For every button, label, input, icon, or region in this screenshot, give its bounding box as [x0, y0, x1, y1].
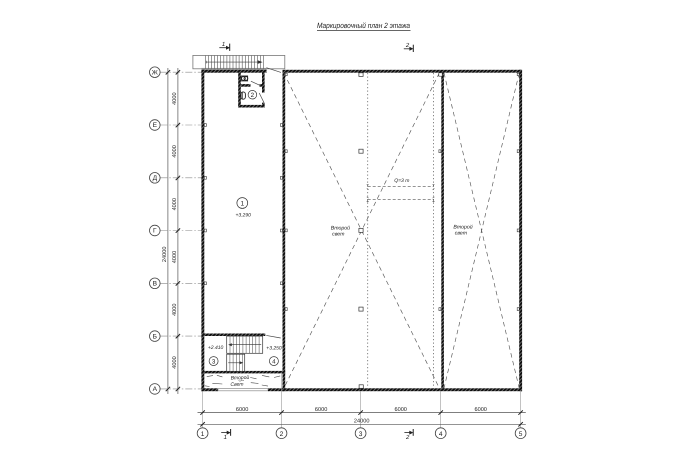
svg-text:24000: 24000 [354, 419, 370, 425]
svg-text:свет: свет [455, 231, 468, 237]
svg-text:2: 2 [405, 42, 410, 49]
svg-text:6000: 6000 [315, 407, 327, 413]
svg-text:+3.290: +3.290 [235, 213, 251, 219]
svg-text:2: 2 [405, 434, 410, 441]
svg-text:1: 1 [240, 200, 244, 207]
svg-text:свет: свет [332, 232, 345, 238]
svg-text:Второй: Второй [231, 375, 250, 382]
svg-text:5: 5 [519, 431, 523, 438]
svg-text:4000: 4000 [172, 303, 178, 315]
svg-text:2: 2 [280, 431, 284, 438]
svg-text:Д: Д [153, 175, 158, 182]
svg-text:6000: 6000 [394, 407, 406, 413]
svg-text:6000: 6000 [236, 407, 248, 413]
svg-text:24000: 24000 [162, 247, 168, 263]
svg-text:+2.410: +2.410 [208, 345, 224, 351]
svg-text:4: 4 [272, 358, 276, 365]
svg-text:Q=3 т: Q=3 т [394, 178, 409, 184]
svg-text:Ж: Ж [152, 69, 158, 76]
svg-text:4000: 4000 [172, 356, 178, 368]
svg-text:2: 2 [251, 92, 255, 99]
svg-text:Маркировочный план 2 этажа: Маркировочный план 2 этажа [317, 21, 410, 30]
svg-text:Б: Б [153, 333, 157, 340]
svg-text:Г: Г [153, 228, 157, 235]
svg-text:1: 1 [222, 41, 225, 48]
svg-text:3: 3 [359, 431, 363, 438]
svg-text:Второй: Второй [331, 225, 350, 231]
svg-text:Второй: Второй [453, 224, 472, 230]
svg-text:Е: Е [153, 122, 158, 129]
svg-text:+3.250: +3.250 [266, 346, 282, 352]
svg-text:6000: 6000 [474, 407, 486, 413]
svg-text:4000: 4000 [172, 198, 178, 210]
svg-text:В: В [153, 281, 158, 288]
svg-text:4: 4 [439, 431, 443, 438]
svg-text:А: А [153, 386, 158, 393]
svg-text:4000: 4000 [172, 251, 178, 263]
svg-text:Свет: Свет [230, 382, 243, 388]
svg-text:1: 1 [224, 434, 227, 441]
svg-text:4000: 4000 [172, 92, 178, 104]
svg-text:4000: 4000 [172, 145, 178, 157]
svg-text:3: 3 [212, 358, 216, 365]
svg-text:1: 1 [201, 431, 205, 438]
